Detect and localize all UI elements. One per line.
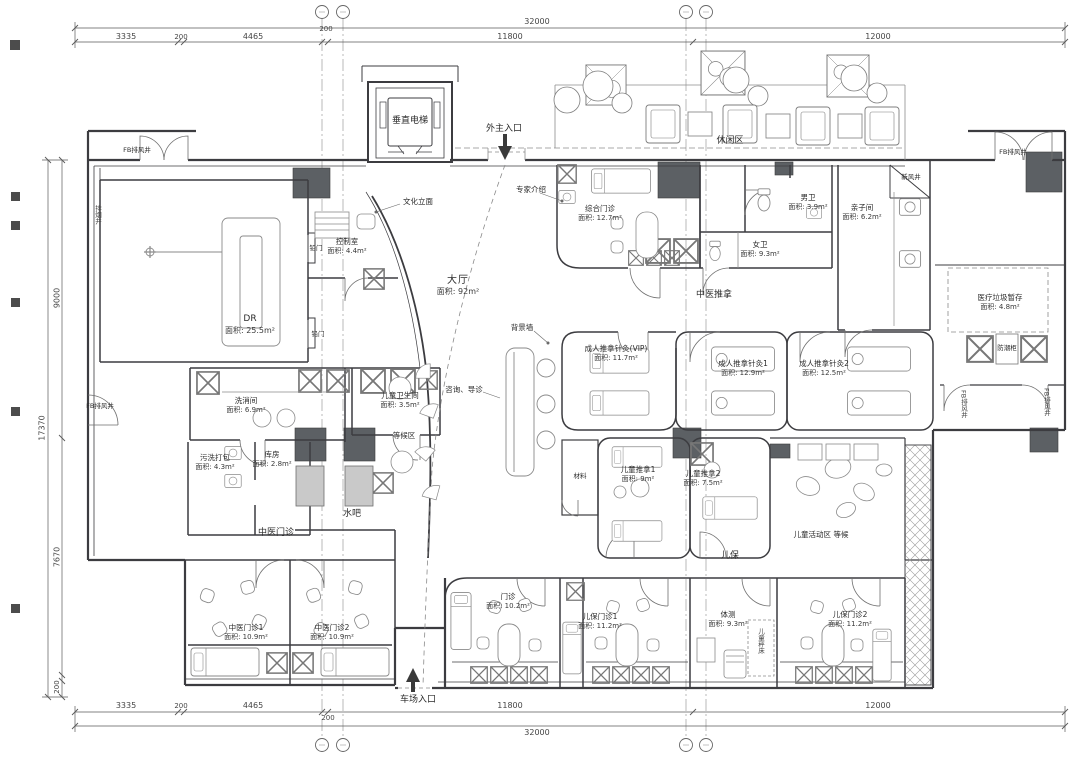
zone-waiting: 等候区 bbox=[393, 431, 416, 441]
room-label-clinic: 门诊面积: 10.2m² bbox=[486, 592, 530, 611]
dim-top-2: 200 bbox=[174, 33, 187, 41]
room-label-childcare-1: 儿保门诊1面积: 11.2m² bbox=[578, 612, 622, 631]
anno-child-scale-bed: 儿童秤床 bbox=[757, 628, 764, 654]
anno-smoke-shaft: 排烟井 bbox=[94, 205, 101, 225]
room-label-tcm1: 中医门诊1面积: 10.9m² bbox=[224, 623, 268, 642]
anno-exhaust-rw1: FB排风井 bbox=[960, 390, 967, 418]
main-entrance-label: 外主入口 bbox=[486, 124, 522, 136]
room-label-mens-wc: 男卫面积: 3.9m² bbox=[788, 193, 827, 212]
zone-hall: 大厅面积: 92m² bbox=[437, 274, 479, 297]
room-label-tcm2: 中医门诊2面积: 10.9m² bbox=[310, 623, 354, 642]
zone-tcm-massage: 中医推拿 bbox=[696, 290, 732, 302]
anno-lead-door-2: 铅门 bbox=[312, 330, 325, 338]
anno-background-wall: 背景墙 bbox=[511, 323, 534, 333]
anno-lead-door-1: 铅门 bbox=[310, 244, 323, 252]
dim-bottom-4: 200 bbox=[321, 714, 334, 722]
dim-top-total: 32000 bbox=[524, 17, 549, 26]
room-label-wash: 洗消间面积: 6.9m² bbox=[226, 396, 265, 415]
room-label-adult-vip: 成人推拿针灸(VIP)面积: 11.7m² bbox=[585, 344, 648, 363]
room-label-adult-2: 成人推拿针灸2面积: 12.5m² bbox=[799, 359, 849, 378]
dim-top-5: 11800 bbox=[497, 32, 522, 41]
dim-top-6: 12000 bbox=[865, 32, 890, 41]
room-label-dr: DR面积: 25.5m² bbox=[225, 314, 275, 336]
floor-plan-drawing bbox=[0, 0, 1080, 758]
anno-exhaust-tl: FB排风井 bbox=[123, 146, 151, 154]
rear-entrance-label: 车场入口 bbox=[400, 695, 436, 707]
lattice-strips bbox=[905, 445, 931, 685]
room-label-medical-waste: 医疗垃圾暂存面积: 4.8m² bbox=[978, 293, 1023, 312]
dim-top-3: 4465 bbox=[243, 32, 263, 41]
dim-left-3: 200 bbox=[53, 680, 61, 693]
rear-entrance-arrow bbox=[406, 668, 420, 692]
dim-bottom-total: 32000 bbox=[524, 728, 549, 737]
leisure-furniture bbox=[554, 51, 899, 145]
main-entrance-arrow bbox=[498, 134, 512, 160]
zone-child-care: 儿保 bbox=[721, 551, 739, 563]
room-label-general-clinic: 综合门诊面积: 12.7m² bbox=[578, 204, 622, 223]
room-label-dirty-pack: 污洗打包面积: 4.3m² bbox=[195, 453, 234, 472]
dim-bottom-6: 12000 bbox=[865, 701, 890, 710]
anno-exhaust-rw2: FB排风井 bbox=[1043, 388, 1050, 416]
room-label-child-massage-2: 儿童推拿2面积: 7.5m² bbox=[683, 469, 722, 488]
room-label-womens-wc: 女卫面积: 9.3m² bbox=[740, 240, 779, 259]
dim-top-4: 200 bbox=[319, 25, 332, 33]
anno-moisture-cabinet: 防潮柜 bbox=[997, 344, 1017, 352]
elevator-shaft bbox=[362, 66, 458, 162]
room-label-childcare-2: 儿保门诊2面积: 11.2m² bbox=[828, 610, 872, 629]
dim-bottom-3: 4465 bbox=[243, 701, 263, 710]
dim-bottom-5: 11800 bbox=[497, 701, 522, 710]
zone-tcm-clinic: 中医门诊 bbox=[258, 528, 294, 540]
water-bar-cabinets bbox=[296, 466, 373, 506]
room-label-children-wc: 儿童卫生间面积: 3.5m² bbox=[380, 391, 419, 410]
dim-bottom-2: 200 bbox=[174, 702, 187, 710]
anno-expert-intro: 专家介绍 bbox=[516, 185, 546, 195]
zone-leisure: 休闲区 bbox=[716, 136, 743, 148]
zone-water-bar: 水吧 bbox=[343, 509, 361, 521]
elevator-label: 垂直电梯 bbox=[392, 116, 428, 128]
anno-exhaust-lw: FB排风井 bbox=[86, 402, 114, 410]
anno-material: 材料 bbox=[574, 472, 587, 480]
room-label-child-massage-1: 儿童推拿1面积: 9m² bbox=[621, 465, 656, 484]
anno-culture-facade: 文化立面 bbox=[403, 197, 433, 207]
anno-exhaust-tr: FB排风井 bbox=[999, 148, 1027, 156]
dim-left-total: 17370 bbox=[38, 415, 47, 440]
furniture bbox=[144, 169, 921, 681]
dim-bottom-1: 3335 bbox=[116, 701, 136, 710]
zone-kids-activity: 儿童活动区 等候 bbox=[794, 530, 849, 540]
dim-left-2: 7670 bbox=[53, 547, 62, 567]
room-label-body-measure: 体测面积: 9.3m² bbox=[708, 610, 747, 629]
floor-plan: 32000 3335 200 4465 200 11800 12000 3335… bbox=[0, 0, 1080, 758]
room-label-adult-1: 成人推拿针灸1面积: 12.9m² bbox=[718, 359, 768, 378]
anno-consult-guide: 咨询、导诊 bbox=[445, 385, 483, 395]
room-label-control: 控制室面积: 4.4m² bbox=[327, 237, 366, 256]
edge-markers bbox=[10, 40, 20, 613]
anno-fresh-air: 新风井 bbox=[901, 173, 921, 181]
room-label-parent-child: 亲子间面积: 6.2m² bbox=[842, 203, 881, 222]
room-label-storage: 库房面积: 2.8m² bbox=[252, 450, 291, 469]
dim-left-1: 9000 bbox=[53, 288, 62, 308]
dim-top-1: 3335 bbox=[116, 32, 136, 41]
